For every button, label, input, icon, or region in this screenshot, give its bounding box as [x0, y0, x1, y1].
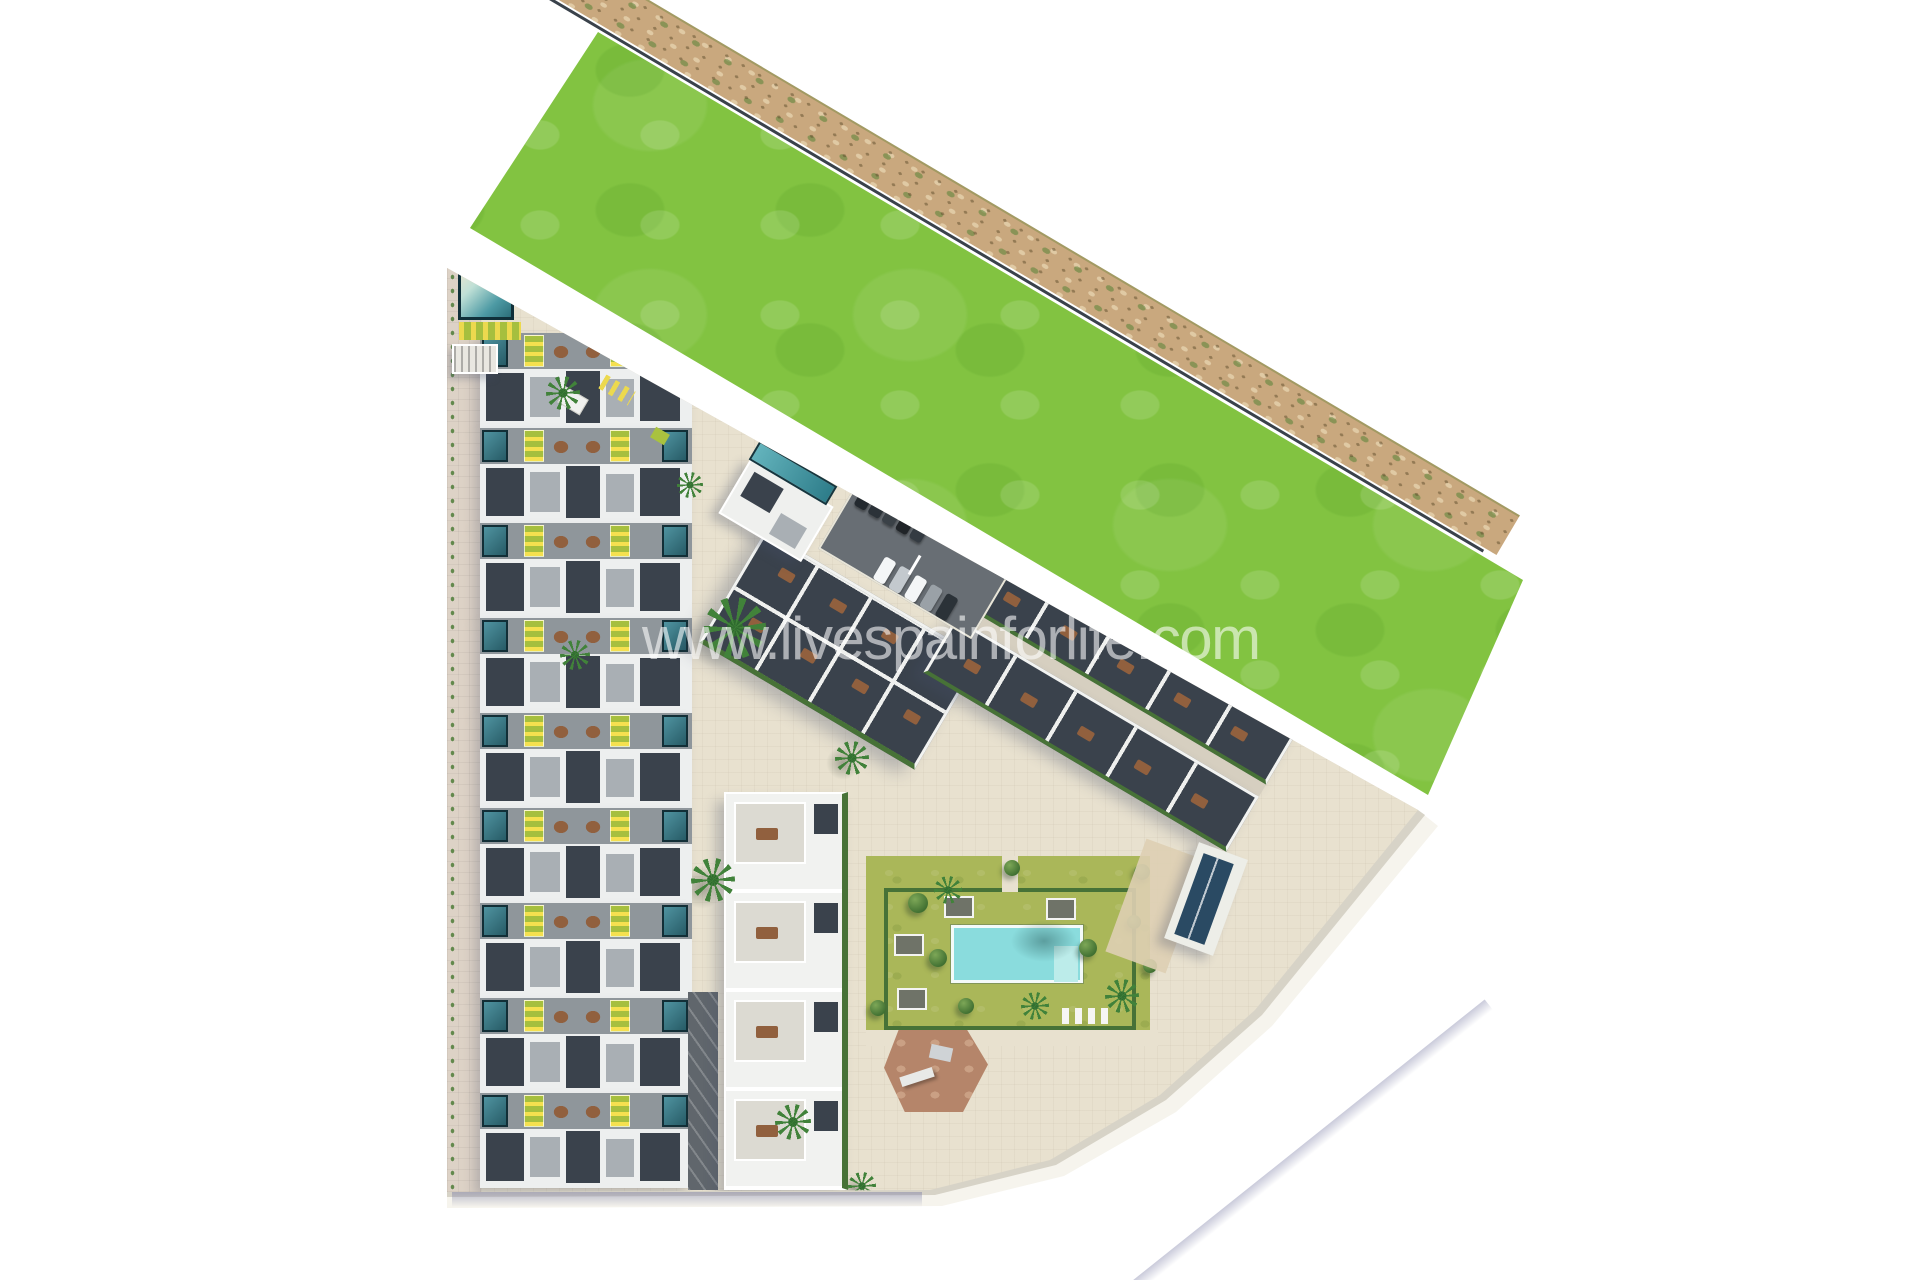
- townhouse-roofs: [480, 464, 692, 523]
- pergola: [897, 988, 927, 1010]
- roof-terrace: [530, 1137, 560, 1177]
- unit-pool: [482, 1095, 508, 1127]
- lounger-lawn: [610, 430, 630, 462]
- round-tree: [958, 998, 974, 1014]
- unit-pool: [482, 715, 508, 747]
- roof-table: [580, 531, 606, 553]
- roof-terrace: [606, 1044, 634, 1082]
- lounger-lawn: [524, 620, 544, 652]
- roof-terrace: [814, 804, 838, 834]
- round-tree: [1004, 860, 1020, 876]
- roof-terrace: [566, 466, 600, 518]
- roof-terrace: [530, 567, 560, 607]
- roof-table: [580, 816, 606, 838]
- roof-terrace: [486, 468, 524, 516]
- lounger-lawn: [524, 1095, 544, 1127]
- townhouse-garden-strip: [480, 523, 692, 559]
- roof-terrace: [486, 1038, 524, 1086]
- roof-table: [580, 721, 606, 743]
- lounger-lawn: [610, 1095, 630, 1127]
- play-equipment: [899, 1067, 934, 1087]
- lounger-lawn: [610, 1000, 630, 1032]
- lounger-lawn: [610, 335, 630, 367]
- townhouse-roofs: [480, 1034, 692, 1093]
- palm-tree-icon: [677, 472, 703, 498]
- roof-terrace: [606, 569, 634, 607]
- palm-tree-icon: [691, 858, 735, 902]
- roof-table: [851, 678, 870, 695]
- roof-table: [1020, 692, 1039, 709]
- service-road: [688, 992, 718, 1190]
- swimming-pool: [951, 925, 1083, 983]
- roof-table: [548, 816, 574, 838]
- townhouse-row: [480, 808, 692, 903]
- palm-tree-icon: [775, 1104, 811, 1140]
- townhouse-row: [480, 333, 692, 428]
- roof-table: [580, 1006, 606, 1028]
- unit-pool: [662, 905, 688, 937]
- apartment-section: [726, 893, 842, 992]
- roof-terrace: [814, 1101, 838, 1131]
- roof-table: [580, 911, 606, 933]
- roof-table: [903, 709, 922, 726]
- pergola: [1046, 898, 1076, 920]
- lounger-lawn: [524, 810, 544, 842]
- unit-pool: [482, 430, 508, 462]
- roof-terrace: [566, 1131, 600, 1183]
- roof-table: [548, 436, 574, 458]
- roof-table: [548, 721, 574, 743]
- roof-table: [580, 1101, 606, 1123]
- palm-tree-icon: [546, 376, 580, 410]
- townhouse-garden-strip: [480, 903, 692, 939]
- roof-table: [777, 567, 796, 584]
- unit-pool: [482, 525, 508, 557]
- townhouse-roofs: [480, 1129, 692, 1188]
- roof-terrace: [640, 848, 680, 896]
- roof-terrace: [530, 472, 560, 512]
- sun-loungers: [1062, 1008, 1108, 1024]
- roof-terrace: [486, 563, 524, 611]
- playground: [884, 1030, 988, 1112]
- townhouse-row: [480, 1093, 692, 1188]
- unit-pool: [482, 620, 508, 652]
- lounger-lawn: [610, 620, 630, 652]
- roof-terrace: [530, 947, 560, 987]
- roof-table: [756, 927, 778, 939]
- roof-terrace: [640, 753, 680, 801]
- unit-pool: [482, 905, 508, 937]
- roof-terrace: [640, 373, 680, 421]
- lounger-lawn: [524, 905, 544, 937]
- unit-pool: [482, 810, 508, 842]
- roof-table: [1190, 793, 1209, 810]
- townhouse-roofs: [480, 749, 692, 808]
- roof-terrace: [530, 662, 560, 702]
- townhouse-roofs: [480, 939, 692, 998]
- townhouse-garden-strip: [480, 1093, 692, 1129]
- townhouse-garden-strip: [480, 713, 692, 749]
- roof-terrace: [566, 941, 600, 993]
- roof-terrace: [606, 949, 634, 987]
- lounger-lawn: [524, 335, 544, 367]
- lounger-lawn: [610, 810, 630, 842]
- roof-table: [548, 531, 574, 553]
- roof-terrace: [606, 759, 634, 797]
- townhouse-row: [480, 998, 692, 1093]
- roof-terrace: [486, 1133, 524, 1181]
- pergola: [894, 934, 924, 956]
- roof-table: [548, 1101, 574, 1123]
- boundary-bushes: [447, 256, 460, 1192]
- roof-terrace: [566, 561, 600, 613]
- roof-terrace: [530, 1042, 560, 1082]
- roof-table: [1076, 725, 1095, 742]
- roof-terrace: [486, 848, 524, 896]
- palm-tree-icon: [560, 640, 590, 670]
- palm-tree-icon: [1105, 979, 1139, 1013]
- lounger-lawn: [524, 525, 544, 557]
- roof-terrace: [606, 1139, 634, 1177]
- palm-shadow: [998, 912, 1090, 970]
- roof-terrace: [566, 1036, 600, 1088]
- townhouse-roofs: [480, 844, 692, 903]
- roof-table: [548, 341, 574, 363]
- unit-pool: [662, 1095, 688, 1127]
- roof-table: [548, 911, 574, 933]
- roof-table: [756, 1026, 778, 1038]
- watermark: www.livespainforlife.com: [642, 604, 1260, 673]
- roof-terrace: [566, 751, 600, 803]
- drop-shadow: [452, 1192, 922, 1207]
- roof-terrace: [486, 658, 524, 706]
- palm-tree-icon: [934, 876, 962, 904]
- townhouse-garden-strip: [480, 998, 692, 1034]
- pergola: [452, 344, 498, 374]
- roof-terrace: [640, 943, 680, 991]
- roof-terrace: [486, 373, 524, 421]
- roof-terrace: [814, 903, 838, 933]
- roof-table: [1230, 725, 1249, 742]
- palm-tree-icon: [835, 741, 869, 775]
- round-tree: [929, 949, 947, 967]
- corner-sunbathing-lawn: [459, 322, 521, 340]
- roof-terrace: [640, 468, 680, 516]
- corner-pool: [458, 266, 514, 320]
- roof-terrace: [530, 757, 560, 797]
- play-equipment: [929, 1044, 953, 1062]
- roof-terrace: [606, 474, 634, 512]
- lounger-lawn: [524, 715, 544, 747]
- roof-table: [580, 436, 606, 458]
- roof-table: [756, 828, 778, 840]
- roof-terrace: [566, 846, 600, 898]
- site-plan-rendering: www.livespainforlife.com: [0, 0, 1920, 1280]
- roof-table: [580, 341, 606, 363]
- townhouse-row: [480, 713, 692, 808]
- roof-table: [1173, 692, 1192, 709]
- car: [908, 515, 932, 544]
- unit-pool: [662, 1000, 688, 1032]
- roof-terrace: [486, 753, 524, 801]
- roof-terrace: [486, 943, 524, 991]
- lounger-lawn: [610, 905, 630, 937]
- palm-tree-icon: [1021, 992, 1049, 1020]
- roof-terrace: [640, 1038, 680, 1086]
- roof-terrace: [530, 852, 560, 892]
- lounger-lawn: [524, 1000, 544, 1032]
- round-tree: [908, 893, 928, 913]
- unit-pool: [662, 525, 688, 557]
- roof-terrace: [606, 664, 634, 702]
- roof-terrace: [640, 1133, 680, 1181]
- townhouse-garden-strip: [480, 808, 692, 844]
- unit-pool: [662, 715, 688, 747]
- lounger-lawn: [610, 525, 630, 557]
- townhouse-row: [480, 903, 692, 998]
- unit-pool: [662, 810, 688, 842]
- roof-table: [548, 1006, 574, 1028]
- round-tree: [1079, 939, 1097, 957]
- unit-pool: [482, 1000, 508, 1032]
- lounger-lawn: [524, 430, 544, 462]
- lounger-lawn: [610, 715, 630, 747]
- roof-terrace: [606, 854, 634, 892]
- roof-table: [1133, 759, 1152, 776]
- round-tree: [870, 1000, 886, 1016]
- apartment-section: [726, 992, 842, 1091]
- roof-terrace: [814, 1002, 838, 1032]
- apartment-section: [726, 794, 842, 893]
